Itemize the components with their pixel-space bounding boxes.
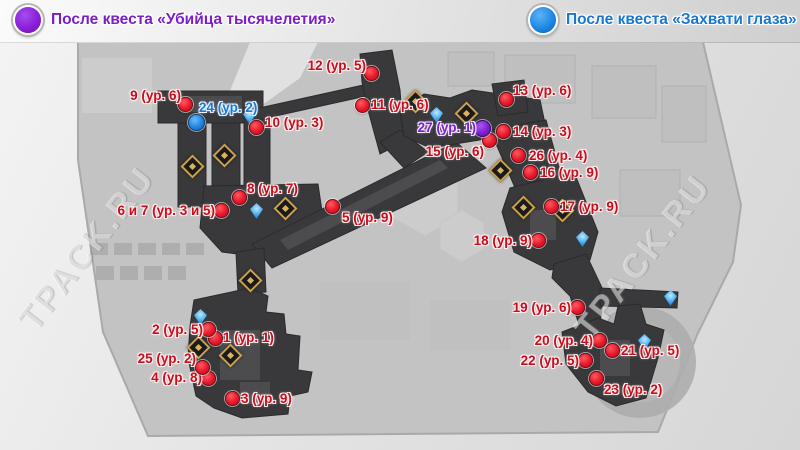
map-marker-label-20: 20 (ур. 4) — [535, 332, 593, 349]
map-marker-label-8: 8 (ур. 7) — [247, 180, 298, 197]
map-marker-label-16: 16 (ур. 9) — [540, 164, 598, 181]
map-marker-dot-25 — [195, 360, 210, 375]
map-marker-label-1: 1 (ур. 1) — [223, 329, 274, 346]
map-background — [0, 0, 800, 450]
map-marker-label-27: 27 (ур. 1) — [418, 119, 476, 136]
map-marker-dot-20 — [592, 333, 607, 348]
legend-bar: После квеста «Убийца тысячелетия» После … — [0, 0, 800, 43]
map-marker-label-26: 26 (ур. 4) — [529, 147, 587, 164]
chest-core — [520, 204, 527, 211]
chest-core — [227, 352, 234, 359]
map-marker-dot-8 — [232, 190, 247, 205]
chest-core — [497, 167, 504, 174]
map-marker-label-25: 25 (ур. 2) — [138, 350, 196, 367]
map-marker-dot-21 — [605, 343, 620, 358]
map-marker-label-15: 15 (ур. 6) — [426, 143, 484, 160]
map-marker-label-9: 9 (ур. 6) — [130, 87, 181, 104]
map-marker-dot-27 — [474, 120, 491, 137]
map-marker-label-23: 23 (ур. 2) — [604, 381, 662, 398]
chest-core — [463, 110, 470, 117]
map-marker-dot-5 — [325, 199, 340, 214]
map-marker-label-4: 4 (ур. 8) — [151, 369, 202, 386]
map-marker-label-3: 3 (ур. 9) — [241, 390, 292, 407]
map-marker-label-21: 21 (ур. 5) — [621, 342, 679, 359]
purple-circle-icon — [13, 5, 43, 35]
map-marker-dot-16 — [523, 165, 538, 180]
map-marker-label-13: 13 (ур. 6) — [513, 82, 571, 99]
map-marker-label-5: 5 (ур. 9) — [342, 209, 393, 226]
map-marker-label-14: 14 (ур. 3) — [513, 123, 571, 140]
chest-core — [247, 277, 254, 284]
map-marker-label-6и7: 6 и 7 (ур. 3 и 5) — [118, 202, 215, 219]
chest-core — [195, 344, 202, 351]
legend-item-millennium-killer: После квеста «Убийца тысячелетия» — [13, 5, 335, 35]
chest-core — [189, 163, 196, 170]
map-marker-dot-14 — [496, 124, 511, 139]
map-marker-dot-18 — [531, 233, 546, 248]
chest-core — [221, 152, 228, 159]
map-marker-label-2: 2 (ур. 5) — [152, 321, 203, 338]
map-marker-label-22: 22 (ур. 5) — [521, 352, 579, 369]
map-marker-dot-2 — [201, 322, 216, 337]
map-marker-label-12: 12 (ур. 5) — [308, 57, 366, 74]
map-marker-dot-17 — [544, 199, 559, 214]
map-marker-label-24: 24 (ур. 2) — [199, 99, 257, 116]
map-marker-label-19: 19 (ур. 6) — [513, 299, 571, 316]
map-marker-dot-22 — [578, 353, 593, 368]
map-marker-label-11: 11 (ур. 6) — [371, 96, 429, 113]
legend-label: После квеста «Захвати глаза» — [566, 11, 797, 29]
map-marker-label-10: 10 (ур. 3) — [265, 114, 323, 131]
game-map-screenshot: TPACK.RU TPACK.RU 1 (ур. 1)2 (ур. 5)3 (у… — [0, 0, 800, 450]
map-marker-dot-26 — [511, 148, 526, 163]
map-marker-dot-6и7 — [214, 203, 229, 218]
chest-core — [282, 205, 289, 212]
legend-label: После квеста «Убийца тысячелетия» — [51, 11, 335, 29]
map-marker-dot-24 — [188, 114, 205, 131]
map-marker-dot-12 — [364, 66, 379, 81]
map-marker-dot-13 — [499, 92, 514, 107]
map-marker-dot-23 — [589, 371, 604, 386]
map-marker-dot-3 — [225, 391, 240, 406]
map-marker-label-18: 18 (ур. 9) — [474, 232, 532, 249]
legend-item-capture-eyes: После квеста «Захвати глаза» — [528, 5, 797, 35]
map-marker-dot-10 — [249, 120, 264, 135]
map-marker-dot-19 — [570, 300, 585, 315]
blue-circle-icon — [528, 5, 558, 35]
map-marker-dot-11 — [355, 98, 370, 113]
map-marker-label-17: 17 (ур. 9) — [560, 198, 618, 215]
